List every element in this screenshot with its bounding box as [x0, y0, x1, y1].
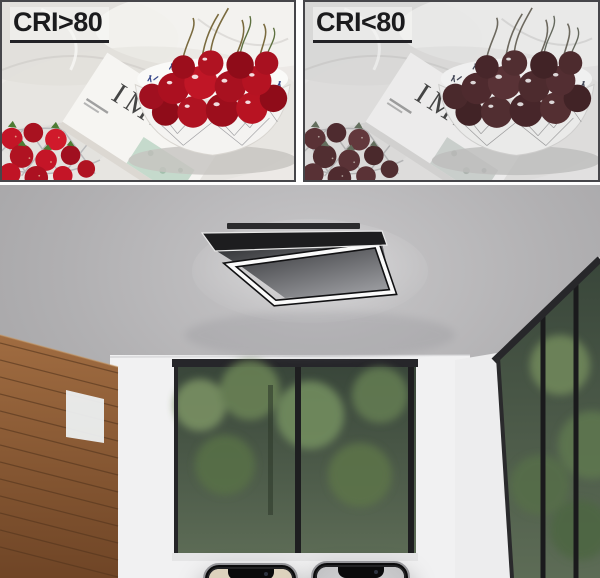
ceiling-lamp-product: [190, 213, 450, 345]
cri-low-label: CRI<80: [313, 7, 412, 43]
phone-demo-ours: [311, 561, 410, 578]
lamp-ceiling-mount: [227, 223, 360, 229]
phone-notch: [338, 567, 384, 578]
photo-cri-low: CRI<80: [303, 0, 600, 182]
phone-notch: [228, 569, 274, 578]
cri-high-label: CRI>80: [10, 7, 109, 43]
phone-demo-others: [203, 563, 298, 578]
product-marketing-image: CRI>80 CRI<80: [0, 0, 600, 578]
room-scene: Andere × Kein Flackern × Augenschutz × L…: [0, 185, 600, 578]
photo-cri-high: CRI>80: [0, 0, 296, 182]
